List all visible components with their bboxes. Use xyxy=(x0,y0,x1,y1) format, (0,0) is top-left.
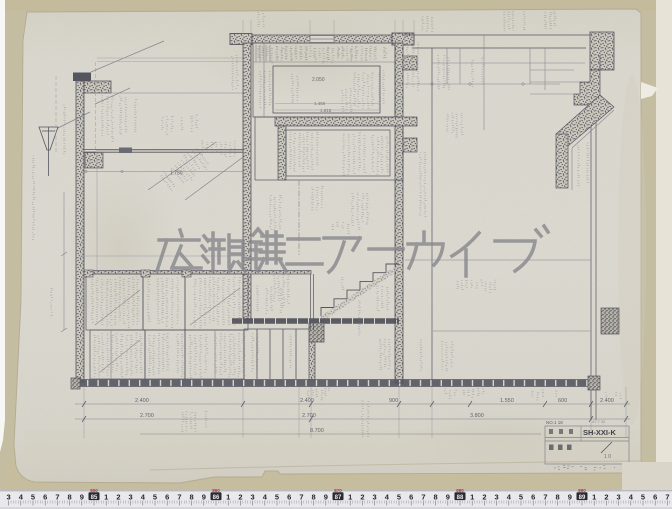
svg-text:1: 1 xyxy=(592,493,596,502)
svg-text:870: 870 xyxy=(334,488,342,493)
svg-text:1: 1 xyxy=(226,493,230,502)
svg-text:7: 7 xyxy=(55,493,59,502)
svg-text:2: 2 xyxy=(482,493,486,502)
svg-text:2.400: 2.400 xyxy=(135,398,149,404)
svg-text:8: 8 xyxy=(556,493,560,502)
svg-text:8: 8 xyxy=(68,493,72,502)
svg-text:6: 6 xyxy=(653,493,657,502)
svg-text:1.550: 1.550 xyxy=(500,398,514,404)
svg-text:7: 7 xyxy=(421,493,425,502)
svg-text:6: 6 xyxy=(287,493,291,502)
svg-text:2.700: 2.700 xyxy=(302,413,316,419)
svg-text:9: 9 xyxy=(446,493,450,502)
svg-text:9: 9 xyxy=(80,493,84,502)
svg-text:850: 850 xyxy=(90,488,98,493)
svg-text:600: 600 xyxy=(558,398,567,404)
svg-text:890: 890 xyxy=(578,488,586,493)
svg-text:3: 3 xyxy=(7,493,11,502)
svg-text:89: 89 xyxy=(579,495,586,501)
svg-text:3: 3 xyxy=(129,493,133,502)
svg-text:5: 5 xyxy=(275,493,279,502)
svg-text:5: 5 xyxy=(397,493,401,502)
svg-text:2: 2 xyxy=(604,493,608,502)
svg-text:2.700: 2.700 xyxy=(140,413,154,419)
svg-text:2: 2 xyxy=(116,493,120,502)
svg-text:1.450: 1.450 xyxy=(314,101,326,106)
svg-text:47 7 32: 47 7 32 xyxy=(592,419,606,424)
svg-text:860: 860 xyxy=(212,488,220,493)
svg-text:1.815: 1.815 xyxy=(320,108,332,113)
svg-text:2: 2 xyxy=(238,493,242,502)
svg-text:3: 3 xyxy=(495,493,499,502)
svg-text:8: 8 xyxy=(434,493,438,502)
svg-text:9: 9 xyxy=(324,493,328,502)
svg-text:5: 5 xyxy=(519,493,523,502)
svg-text:900: 900 xyxy=(389,398,398,404)
svg-text:7: 7 xyxy=(299,493,303,502)
svg-text:6: 6 xyxy=(165,493,169,502)
svg-text:85: 85 xyxy=(91,495,98,501)
svg-text:7: 7 xyxy=(543,493,547,502)
svg-text:88: 88 xyxy=(457,495,464,501)
svg-text:5: 5 xyxy=(31,493,35,502)
svg-text:8.700: 8.700 xyxy=(310,428,324,434)
svg-text:3: 3 xyxy=(617,493,621,502)
svg-text:9: 9 xyxy=(202,493,206,502)
svg-text:7: 7 xyxy=(177,493,181,502)
svg-text:2: 2 xyxy=(360,493,364,502)
svg-text:5: 5 xyxy=(641,493,645,502)
svg-text:6: 6 xyxy=(531,493,535,502)
svg-text:9: 9 xyxy=(568,493,572,502)
svg-text:8: 8 xyxy=(312,493,316,502)
svg-text:880: 880 xyxy=(456,488,464,493)
svg-text:1 0: 1 0 xyxy=(604,454,611,460)
svg-text:2.400: 2.400 xyxy=(600,398,614,404)
svg-text:2.400: 2.400 xyxy=(300,398,314,404)
svg-text:NO.1 18: NO.1 18 xyxy=(546,420,563,425)
svg-text:1: 1 xyxy=(104,493,108,502)
svg-text:6: 6 xyxy=(43,493,47,502)
svg-text:3: 3 xyxy=(251,493,255,502)
svg-text:1: 1 xyxy=(348,493,352,502)
svg-text:8: 8 xyxy=(190,493,194,502)
svg-text:86: 86 xyxy=(213,495,220,501)
svg-text:2.050: 2.050 xyxy=(312,77,325,83)
svg-text:7: 7 xyxy=(665,493,669,502)
svg-text:5: 5 xyxy=(153,493,157,502)
svg-text:3.800: 3.800 xyxy=(470,413,484,419)
svg-text:1: 1 xyxy=(470,493,474,502)
svg-text:87: 87 xyxy=(335,495,342,501)
svg-text:3: 3 xyxy=(373,493,377,502)
svg-text:SH-XXI-K: SH-XXI-K xyxy=(583,428,617,437)
svg-text:6: 6 xyxy=(409,493,413,502)
